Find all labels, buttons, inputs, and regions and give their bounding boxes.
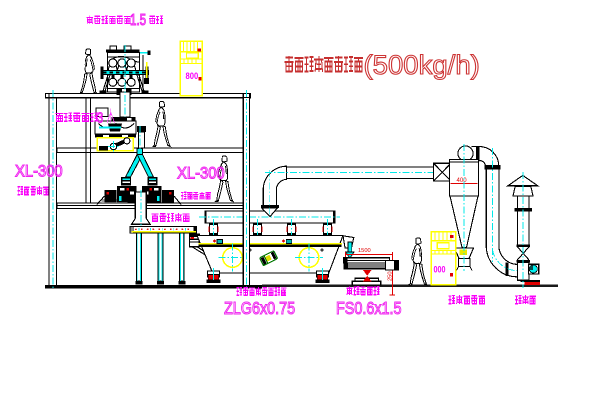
svg-text:000: 000 bbox=[434, 265, 446, 275]
svg-text:1.5: 1.5 bbox=[130, 11, 146, 28]
svg-text:XL-300: XL-300 bbox=[177, 165, 225, 183]
svg-text:(500kg/h): (500kg/h) bbox=[364, 49, 480, 80]
svg-text:3: 3 bbox=[97, 109, 103, 126]
svg-text:ZLG6x0.75: ZLG6x0.75 bbox=[224, 299, 295, 319]
svg-text:1500: 1500 bbox=[358, 248, 371, 254]
svg-text:250: 250 bbox=[388, 271, 394, 281]
svg-text:XL-300: XL-300 bbox=[15, 163, 63, 181]
svg-text:800: 800 bbox=[186, 70, 199, 81]
svg-text:FS0.6x1.5: FS0.6x1.5 bbox=[336, 299, 402, 319]
